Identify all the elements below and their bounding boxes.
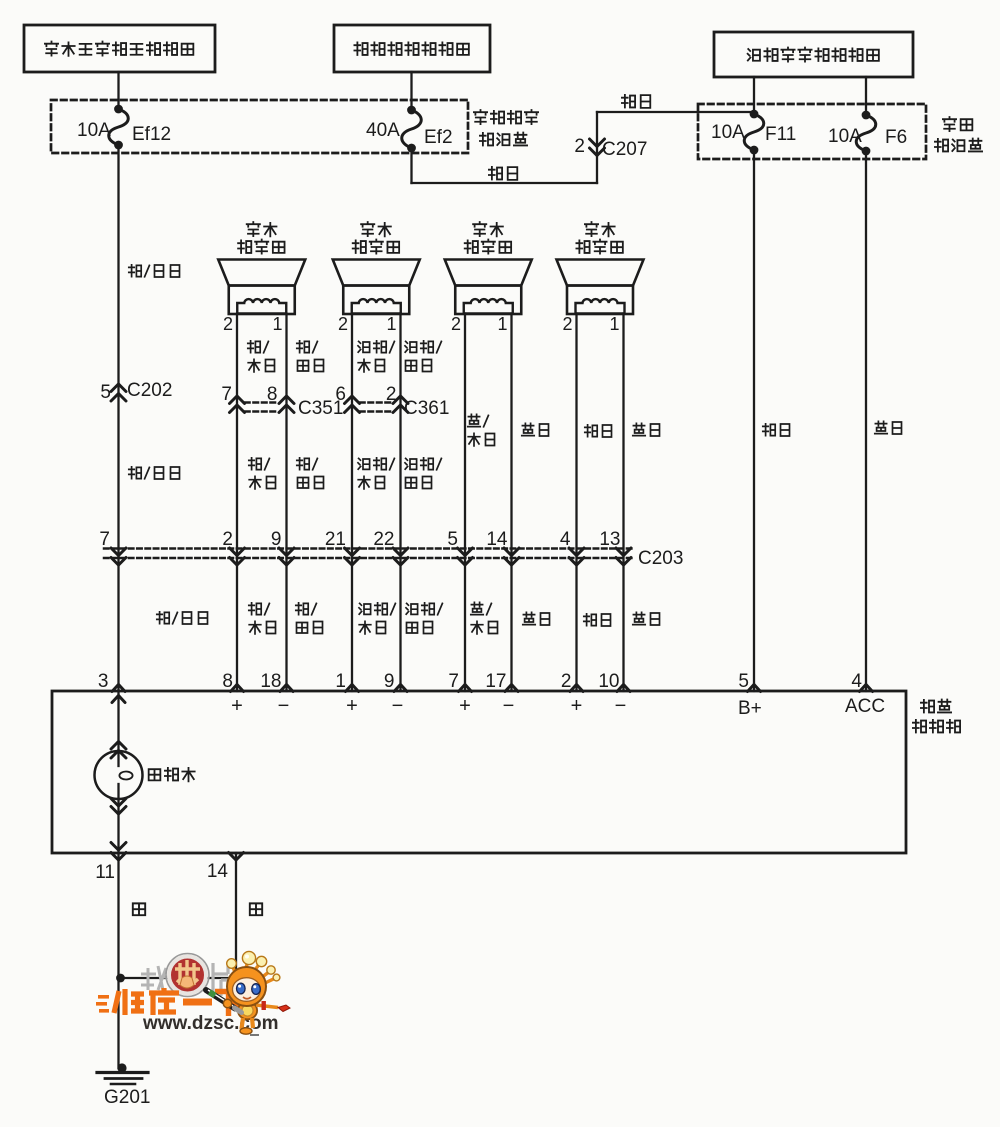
svg-text:+: + <box>346 695 358 717</box>
svg-text:1: 1 <box>497 314 507 334</box>
svg-text:7: 7 <box>448 671 459 692</box>
svg-text:1: 1 <box>386 314 396 334</box>
svg-text:2: 2 <box>574 136 585 157</box>
svg-text:13: 13 <box>599 529 620 550</box>
svg-text:14: 14 <box>207 861 229 882</box>
svg-text:2: 2 <box>223 314 233 334</box>
svg-text:10A: 10A <box>711 122 745 143</box>
svg-text:22: 22 <box>373 529 394 550</box>
svg-text:1: 1 <box>272 314 282 334</box>
svg-text:2: 2 <box>386 384 397 405</box>
svg-text:40A: 40A <box>366 120 400 141</box>
svg-text:+: + <box>231 695 243 717</box>
svg-text:3: 3 <box>98 671 109 692</box>
svg-text:10: 10 <box>598 671 619 692</box>
svg-text:C202: C202 <box>127 380 172 401</box>
svg-text:C203: C203 <box>638 548 683 569</box>
svg-text:1: 1 <box>609 314 619 334</box>
svg-text:−: − <box>278 695 290 717</box>
svg-text:18: 18 <box>260 671 281 692</box>
svg-text:8: 8 <box>267 384 278 405</box>
svg-text:2: 2 <box>451 314 461 334</box>
svg-text:2: 2 <box>561 671 572 692</box>
svg-text:10A: 10A <box>828 126 862 147</box>
svg-text:+: + <box>571 695 583 717</box>
svg-text:2: 2 <box>338 314 348 334</box>
svg-text:7: 7 <box>221 384 232 405</box>
svg-text:1: 1 <box>335 671 346 692</box>
svg-text:Ef2: Ef2 <box>424 127 453 148</box>
svg-text:www.dzsc.com: www.dzsc.com <box>142 1013 279 1034</box>
svg-text:14: 14 <box>486 529 508 550</box>
svg-text:2: 2 <box>562 314 572 334</box>
svg-text:5: 5 <box>738 671 749 692</box>
svg-text:21: 21 <box>325 529 346 550</box>
svg-text:ACC: ACC <box>845 696 885 717</box>
svg-text:C207: C207 <box>602 139 647 160</box>
svg-text:F6: F6 <box>885 127 907 148</box>
svg-text:9: 9 <box>271 529 282 550</box>
svg-text:8: 8 <box>222 671 233 692</box>
svg-text:F11: F11 <box>765 124 796 145</box>
svg-text:−: − <box>392 695 404 717</box>
svg-text:−: − <box>615 695 627 717</box>
svg-text:2: 2 <box>222 529 233 550</box>
svg-text:17: 17 <box>485 671 506 692</box>
svg-text:Ef12: Ef12 <box>132 124 171 145</box>
svg-text:4: 4 <box>851 671 862 692</box>
svg-text:+: + <box>459 695 471 717</box>
svg-text:G201: G201 <box>104 1087 150 1108</box>
svg-text:6: 6 <box>335 384 346 405</box>
svg-text:5: 5 <box>447 529 458 550</box>
svg-text:9: 9 <box>384 671 395 692</box>
svg-text:B+: B+ <box>738 698 762 719</box>
svg-text:−: − <box>503 695 515 717</box>
svg-text:4: 4 <box>560 529 571 550</box>
svg-text:C361: C361 <box>404 398 449 419</box>
svg-text:10A: 10A <box>77 120 111 141</box>
svg-text:7: 7 <box>99 529 110 550</box>
svg-text:5: 5 <box>100 382 111 403</box>
svg-text:11: 11 <box>95 862 115 883</box>
